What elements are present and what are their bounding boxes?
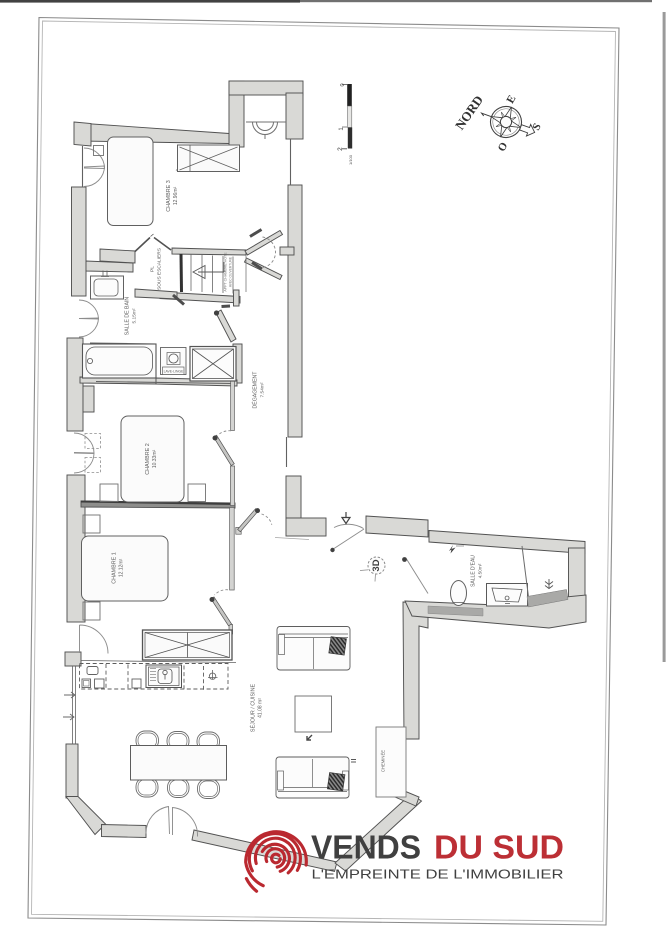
svg-text:3D: 3D xyxy=(371,559,382,571)
svg-text:12.96m²: 12.96m² xyxy=(173,186,179,205)
svg-text:2: 2 xyxy=(337,147,344,151)
svg-text:O: O xyxy=(496,140,511,154)
svg-text:DÉGAGEMENT: DÉGAGEMENT xyxy=(252,371,259,409)
svg-text:APPT CHAMBRE HÔTE: APPT CHAMBRE HÔTE xyxy=(223,252,228,292)
svg-text:SALLE D'EAU: SALLE D'EAU xyxy=(471,555,477,587)
svg-text:0: 0 xyxy=(340,83,346,86)
svg-text:7.54m²: 7.54m² xyxy=(260,382,266,397)
svg-text:CHAMBRE 2: CHAMBRE 2 xyxy=(145,443,151,474)
svg-text:LAVE-LINGE: LAVE-LINGE xyxy=(164,370,184,374)
svg-text:SÉJOUR / CUISINE: SÉJOUR / CUISINE xyxy=(250,683,257,732)
svg-text:5.15m²: 5.15m² xyxy=(132,308,138,323)
svg-text:VENDS: VENDS xyxy=(311,830,421,867)
svg-text:CHAMBRE 3: CHAMBRE 3 xyxy=(166,180,172,211)
svg-text:DU SUD: DU SUD xyxy=(434,830,564,867)
svg-text:10.33m²: 10.33m² xyxy=(152,449,158,468)
svg-text:SALLE DE BAIN: SALLE DE BAIN xyxy=(125,297,131,336)
svg-text:41.08 m²: 41.08 m² xyxy=(258,698,264,718)
svg-text:SOUS ESCALIERS: SOUS ESCALIERS xyxy=(157,248,163,290)
svg-text:E: E xyxy=(504,93,518,105)
svg-text:1/100: 1/100 xyxy=(348,154,353,165)
svg-text:PL: PL xyxy=(150,266,156,272)
svg-text:CHAMBRE 1: CHAMBRE 1 xyxy=(112,552,118,583)
svg-text:4.50m²: 4.50m² xyxy=(478,563,483,578)
svg-text:AVEC OUVERTURE: AVEC OUVERTURE xyxy=(229,256,233,287)
svg-text:12.12m²: 12.12m² xyxy=(119,558,125,577)
svg-text:L'EMPREINTE DE L'IMMOBILIER: L'EMPREINTE DE L'IMMOBILIER xyxy=(312,867,564,882)
svg-text:CHEMINÉE: CHEMINÉE xyxy=(381,750,386,772)
